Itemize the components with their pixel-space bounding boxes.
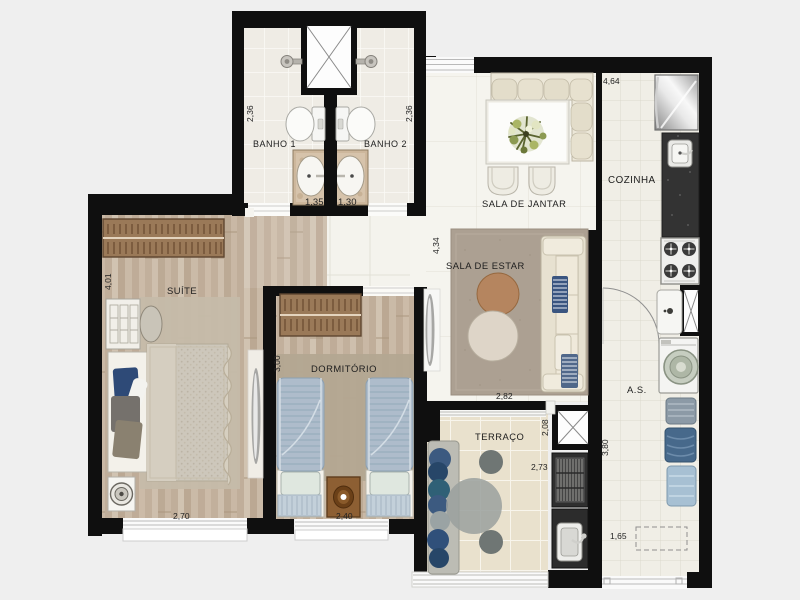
svg-text:3,00: 3,00 [272, 355, 282, 372]
svg-text:2,08: 2,08 [540, 419, 550, 436]
svg-text:2,36: 2,36 [245, 105, 255, 122]
svg-text:4,64: 4,64 [603, 76, 620, 86]
svg-text:2,36: 2,36 [404, 105, 414, 122]
svg-text:BANHO 1: BANHO 1 [253, 139, 296, 149]
svg-text:2,40: 2,40 [336, 511, 353, 521]
svg-text:SALA DE ESTAR: SALA DE ESTAR [446, 260, 525, 271]
svg-text:1,35: 1,35 [305, 197, 324, 208]
svg-text:4,34: 4,34 [431, 237, 441, 254]
svg-text:2,82: 2,82 [496, 391, 513, 401]
svg-text:2,70: 2,70 [173, 511, 190, 521]
svg-text:BANHO 2: BANHO 2 [364, 139, 407, 149]
svg-text:A.S.: A.S. [627, 384, 647, 395]
svg-text:1,30: 1,30 [338, 197, 357, 208]
svg-text:DORMITÓRIO: DORMITÓRIO [311, 363, 377, 374]
svg-text:2,73: 2,73 [531, 462, 548, 472]
svg-text:1,65: 1,65 [610, 531, 627, 541]
svg-text:SUÍTE: SUÍTE [167, 285, 197, 296]
svg-text:SALA DE JANTAR: SALA DE JANTAR [482, 198, 566, 209]
svg-text:TERRAÇO: TERRAÇO [475, 431, 524, 442]
svg-text:3,80: 3,80 [600, 439, 610, 456]
svg-text:COZINHA: COZINHA [608, 175, 656, 186]
svg-text:4,01: 4,01 [103, 273, 113, 290]
